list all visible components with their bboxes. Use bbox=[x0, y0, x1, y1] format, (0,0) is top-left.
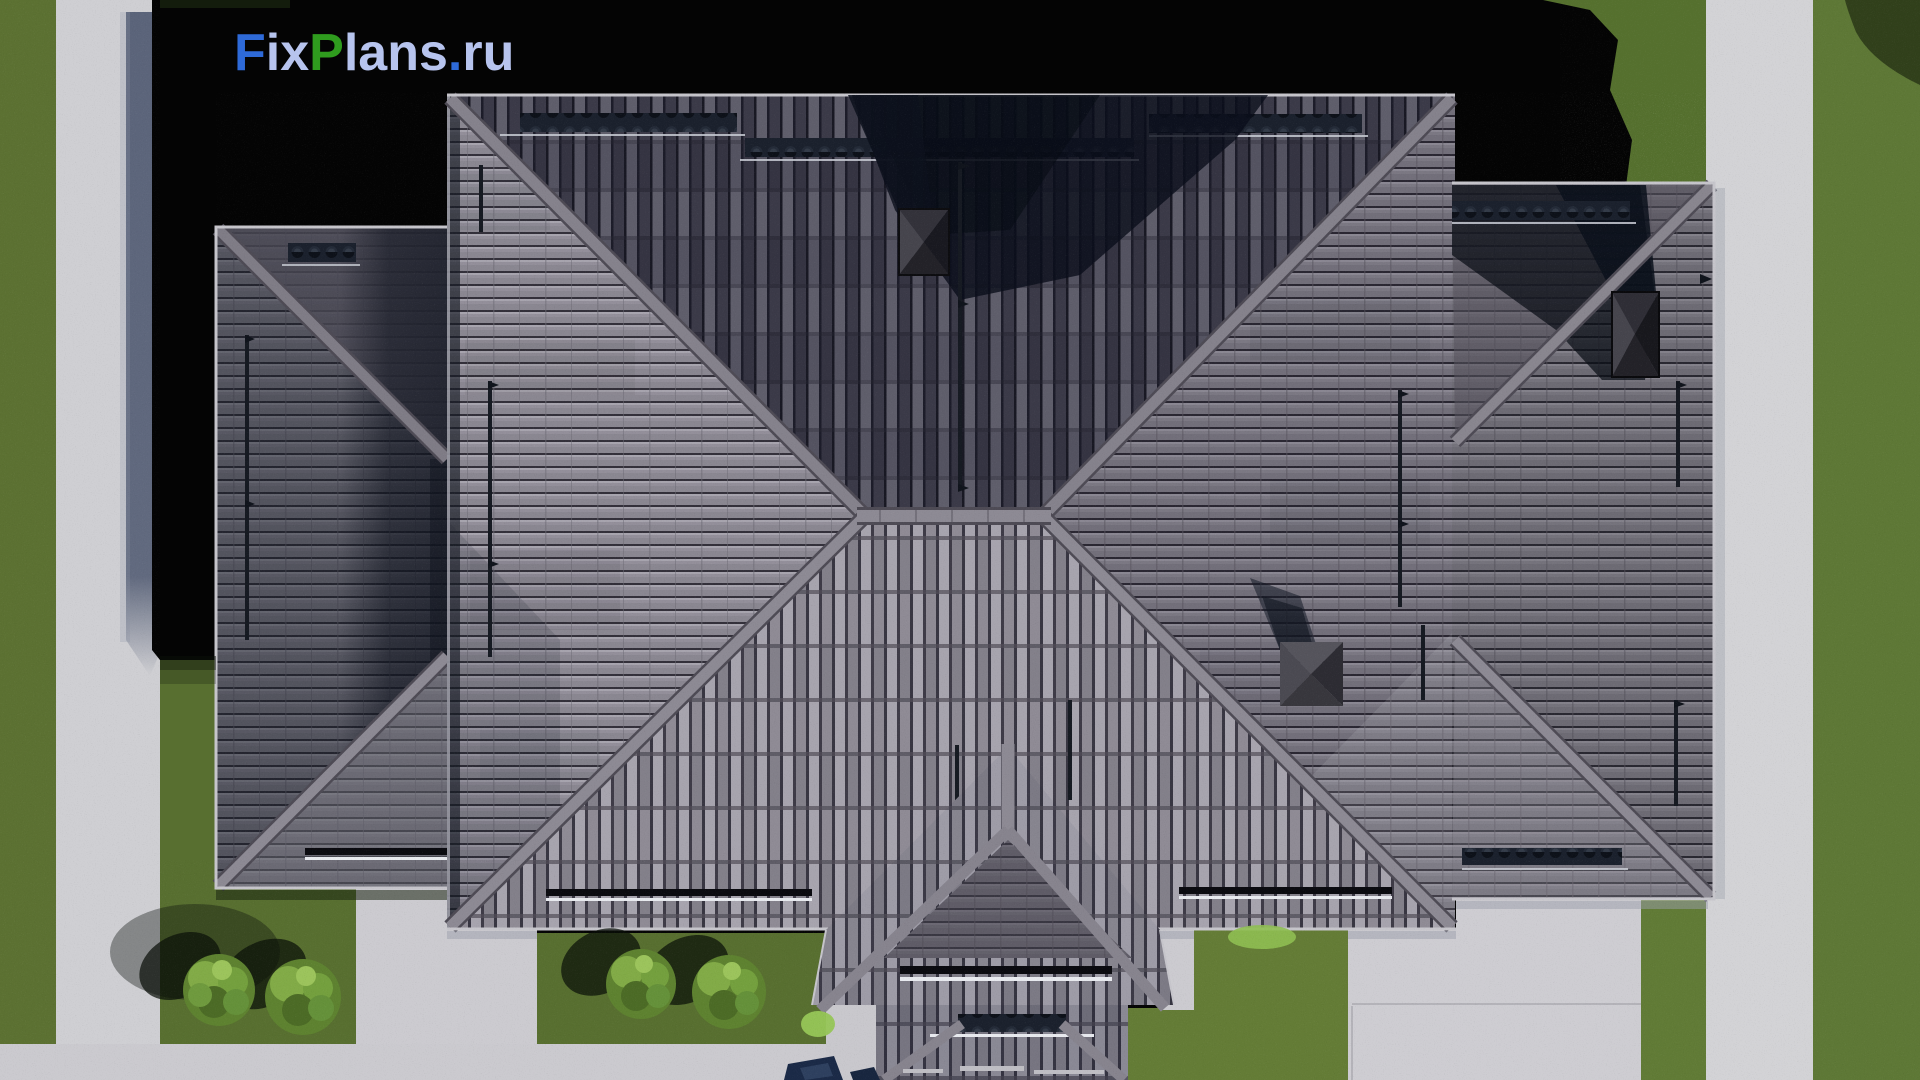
svg-text:FixPlans.ru: FixPlans.ru bbox=[234, 24, 514, 82]
